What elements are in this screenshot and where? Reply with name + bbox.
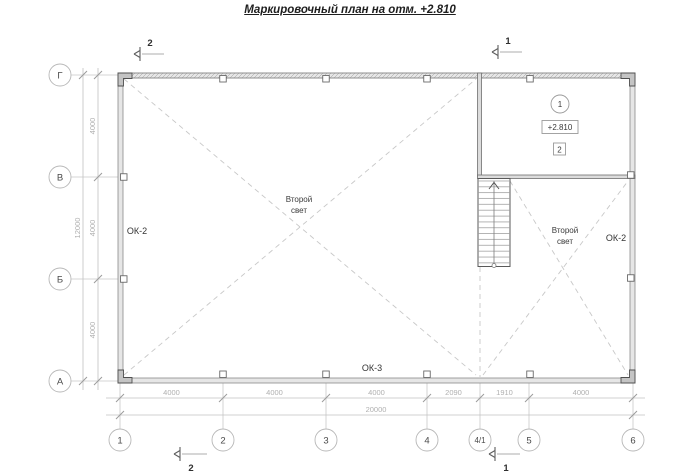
detail-number-mark: 2	[554, 143, 566, 155]
dim-2-3: 4000	[266, 388, 283, 397]
axis-label-g: Г	[57, 71, 62, 82]
room-number-text: 1	[558, 100, 563, 109]
dim-3-4: 4000	[368, 388, 385, 397]
staircase	[478, 179, 510, 268]
window-mark-right: ОК-2	[606, 233, 626, 243]
plan-labels: ОК-2 ОК-2 ОК-3 Второй свет Второй свет	[127, 195, 626, 373]
axis-bubble-4: 4	[416, 429, 438, 451]
axis-label-3: 3	[323, 436, 328, 447]
axis-label-5: 5	[526, 436, 531, 447]
axis-bubble-3: 3	[315, 429, 337, 451]
second-light-right-line1: Второй	[552, 226, 578, 235]
axis-bubble-v: В	[49, 166, 71, 188]
dim-b-a: 4000	[88, 322, 97, 339]
dim-v-b: 4000	[88, 220, 97, 237]
section-number-top-left: 2	[147, 38, 152, 49]
section-number-bottom-left: 2	[188, 463, 193, 474]
second-light-right-line2: свет	[557, 237, 573, 246]
elevation-mark: +2.810	[542, 121, 578, 134]
axis-bubbles-left: Г В Б А	[49, 64, 71, 392]
section-marker-bottom-left: 2	[174, 447, 207, 474]
wall-right	[630, 73, 635, 383]
dim-total-left: 12000	[73, 218, 82, 239]
wall-top-hatch	[118, 73, 635, 78]
axis-label-v: В	[57, 173, 63, 184]
dimension-labels-left: 4000 4000 4000 12000	[73, 118, 97, 339]
axis-bubble-5: 5	[518, 429, 540, 451]
dim-4-41: 2090	[445, 388, 462, 397]
dim-1-2: 4000	[163, 388, 180, 397]
axis-bubbles-bottom: 1 2 3 4 4/1 5	[109, 429, 644, 451]
section-number-bottom-right: 1	[503, 463, 509, 474]
axis-bubble-g: Г	[49, 64, 71, 86]
axis-bubble-1: 1	[109, 429, 131, 451]
second-light-left-line1: Второй	[286, 195, 312, 204]
corner-column-top-right	[621, 73, 635, 86]
axis-bubble-6: 6	[622, 429, 644, 451]
dim-g-v: 4000	[88, 118, 97, 135]
window-mark-bottom: ОК-3	[362, 363, 382, 373]
drawing-sheet: Маркировочный план на отм. +2.810	[0, 0, 700, 474]
wall-interior-horizontal	[478, 175, 636, 179]
dim-41-5: 1910	[496, 388, 513, 397]
wall-interior-vertical	[478, 73, 482, 177]
section-marker-top-left: 2	[134, 38, 164, 61]
axis-label-4: 4	[424, 436, 429, 447]
floor-plan-canvas: Г В Б А 1 2	[0, 0, 700, 474]
elevation-text: +2.810	[548, 123, 573, 132]
corner-column-bottom-left	[118, 370, 132, 383]
axis-label-4-1: 4/1	[474, 436, 486, 445]
axis-bubble-b: Б	[49, 268, 71, 290]
axis-label-2: 2	[220, 436, 225, 447]
wall-bottom	[118, 378, 635, 383]
dim-total-bottom: 20000	[366, 405, 387, 414]
corner-column-bottom-right	[621, 370, 635, 383]
section-number-top-right: 1	[505, 36, 511, 47]
detail-number-text: 2	[557, 146, 562, 155]
second-light-left-line2: свет	[291, 206, 307, 215]
wall-left	[118, 73, 123, 383]
axis-label-6: 6	[630, 436, 635, 447]
axis-label-a: А	[57, 377, 64, 388]
room-number-mark: 1	[551, 95, 569, 113]
stair-rail-end	[492, 264, 496, 268]
section-marker-bottom-right: 1	[489, 447, 520, 474]
dim-5-6: 4000	[573, 388, 590, 397]
section-marker-top-right: 1	[492, 36, 522, 59]
axis-bubble-4-1: 4/1	[469, 429, 491, 451]
axis-bubble-2: 2	[212, 429, 234, 451]
axis-label-b: Б	[57, 275, 63, 286]
axis-label-1: 1	[117, 436, 122, 447]
window-mark-left: ОК-2	[127, 226, 147, 236]
axis-bubble-a: А	[49, 370, 71, 392]
